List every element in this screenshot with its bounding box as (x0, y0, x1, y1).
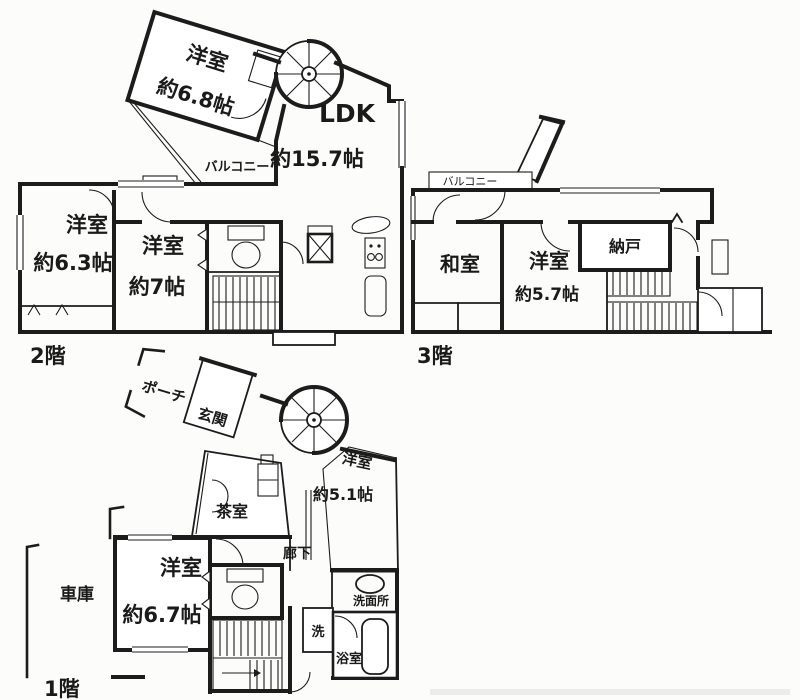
entrance-block: ポーチ 玄関 (125, 342, 255, 444)
right-annex-3f (698, 288, 762, 332)
room-size: 約5.7帖 (515, 284, 579, 305)
faded-watermark (430, 689, 790, 695)
room-label: 車庫 (60, 584, 94, 605)
room-label: バルコニー (205, 160, 270, 175)
room-yoshitsu-6-7 (115, 538, 210, 650)
room-yoshitsu-6-8: 洋室 約6.8帖 (128, 12, 285, 140)
room-label: LDK (319, 99, 377, 128)
room-label: 茶室 (215, 502, 248, 521)
floor-label-1f: 1階 (44, 677, 80, 700)
room-size: 約15.7帖 (270, 147, 364, 171)
floor-3f: バルコニー (409, 117, 770, 368)
room-size: 約6.3帖 (33, 251, 112, 275)
room-label: 洋室 (142, 234, 184, 258)
room-size: 約6.7帖 (122, 603, 201, 627)
floor-plan-sheet: 洋室 約6.8帖 バルコニー (0, 0, 800, 700)
kitchen-icon (351, 214, 391, 316)
room-chashitsu: 茶室 (192, 451, 289, 536)
room-label: 洋室 (66, 213, 108, 237)
toilet-2f-icon (198, 226, 281, 272)
room-yoshitsu-5-1: 洋室 約5.1帖 (313, 447, 398, 572)
room-label: 納戸 (609, 237, 641, 256)
stairs-1f-icon (213, 608, 310, 692)
stairs-2f-icon (213, 276, 281, 330)
room-label: ポーチ (140, 377, 188, 407)
room-label: 洗面所 (353, 593, 389, 608)
spiral-stair-1f-icon (262, 387, 347, 453)
floor-2f: 洋室 約6.8帖 バルコニー (15, 12, 408, 368)
toilet-1f-icon (202, 539, 282, 618)
elevator-shaft-icon (308, 226, 332, 262)
room-label: 浴室 (336, 651, 362, 667)
floor-label-3f: 3階 (417, 344, 453, 368)
room-size: 約5.1帖 (313, 485, 373, 504)
room-label: 洋室 (529, 249, 569, 273)
room-label: 洗 (311, 624, 324, 640)
sanitary-block: 洗面所 洗 浴室 (303, 570, 397, 678)
room-label: 和室 (440, 252, 480, 276)
room-label: 洋室 (160, 556, 202, 580)
room-label: バルコニー (443, 175, 498, 188)
sink-icon (356, 575, 384, 593)
room-label: 廊下 (283, 545, 311, 562)
room-size: 約7帖 (129, 275, 186, 299)
room-balcony-3f: バルコニー (429, 117, 563, 189)
stairs-3f-icon (607, 270, 697, 332)
floor-1f: ポーチ 玄関 茶室 洋室 (27, 342, 398, 700)
floor-label-2f: 2階 (30, 344, 66, 368)
floor-plan-drawing: 洋室 約6.8帖 バルコニー (0, 0, 800, 700)
